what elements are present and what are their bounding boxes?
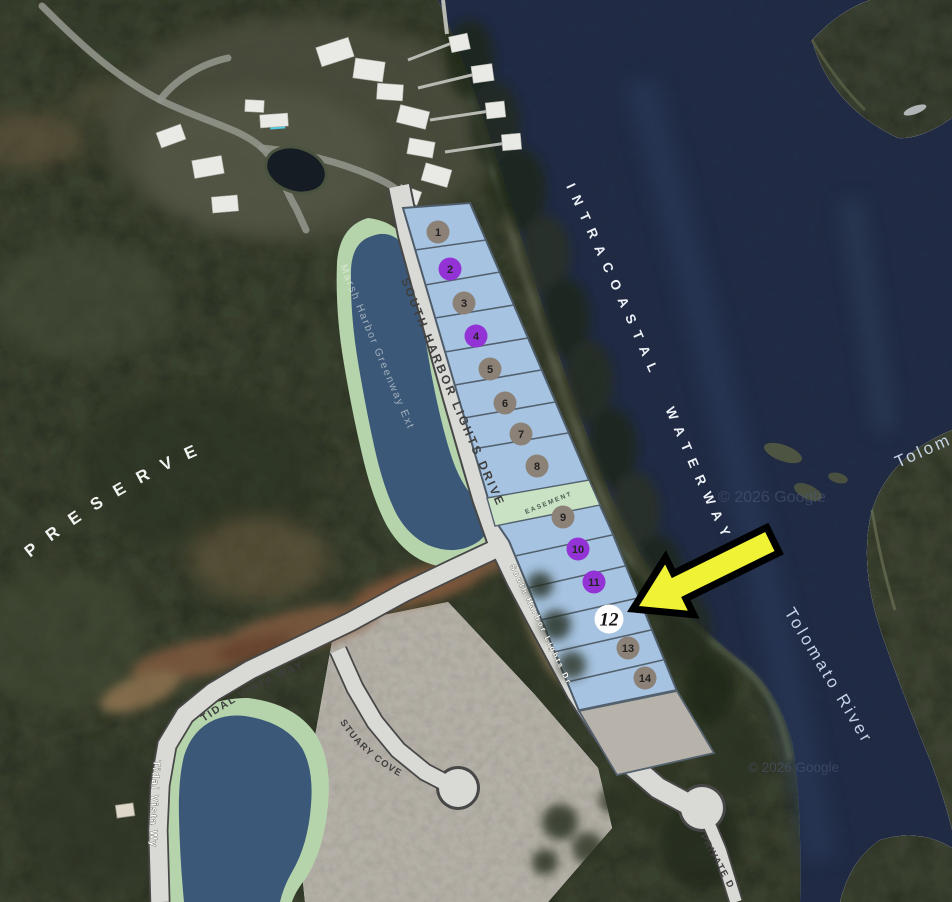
lot-number: 3 xyxy=(461,298,467,310)
lot-number: 5 xyxy=(487,364,493,376)
boathouse xyxy=(471,64,494,84)
lot-number: 1 xyxy=(435,227,441,239)
lot-number: 12 xyxy=(600,610,620,631)
lot-number: 14 xyxy=(639,673,652,685)
map-canvas: SOUTH HARBOR LIGHTS DRIVE South Harbor L… xyxy=(0,0,952,902)
construction-site xyxy=(115,803,135,818)
boathouse xyxy=(485,101,506,119)
lot-number: 4 xyxy=(473,331,480,343)
lot-number: 6 xyxy=(502,398,508,410)
cul-de-sac xyxy=(439,769,477,807)
lot-number: 10 xyxy=(572,544,584,556)
lower-pond xyxy=(165,698,329,902)
lot-number: 8 xyxy=(534,461,540,473)
boathouse xyxy=(501,133,521,151)
google-watermark: © 2026 Google xyxy=(748,760,839,775)
lot-number: 13 xyxy=(622,643,634,655)
lot-map: SOUTH HARBOR LIGHTS DRIVE South Harbor L… xyxy=(0,0,952,902)
lot-number: 7 xyxy=(518,429,524,441)
google-watermark: © 2026 Google xyxy=(718,489,826,506)
lot-number: 9 xyxy=(560,512,566,524)
lot-number: 2 xyxy=(447,264,453,276)
cul-de-sac xyxy=(681,787,723,829)
lot-number: 11 xyxy=(588,577,600,589)
